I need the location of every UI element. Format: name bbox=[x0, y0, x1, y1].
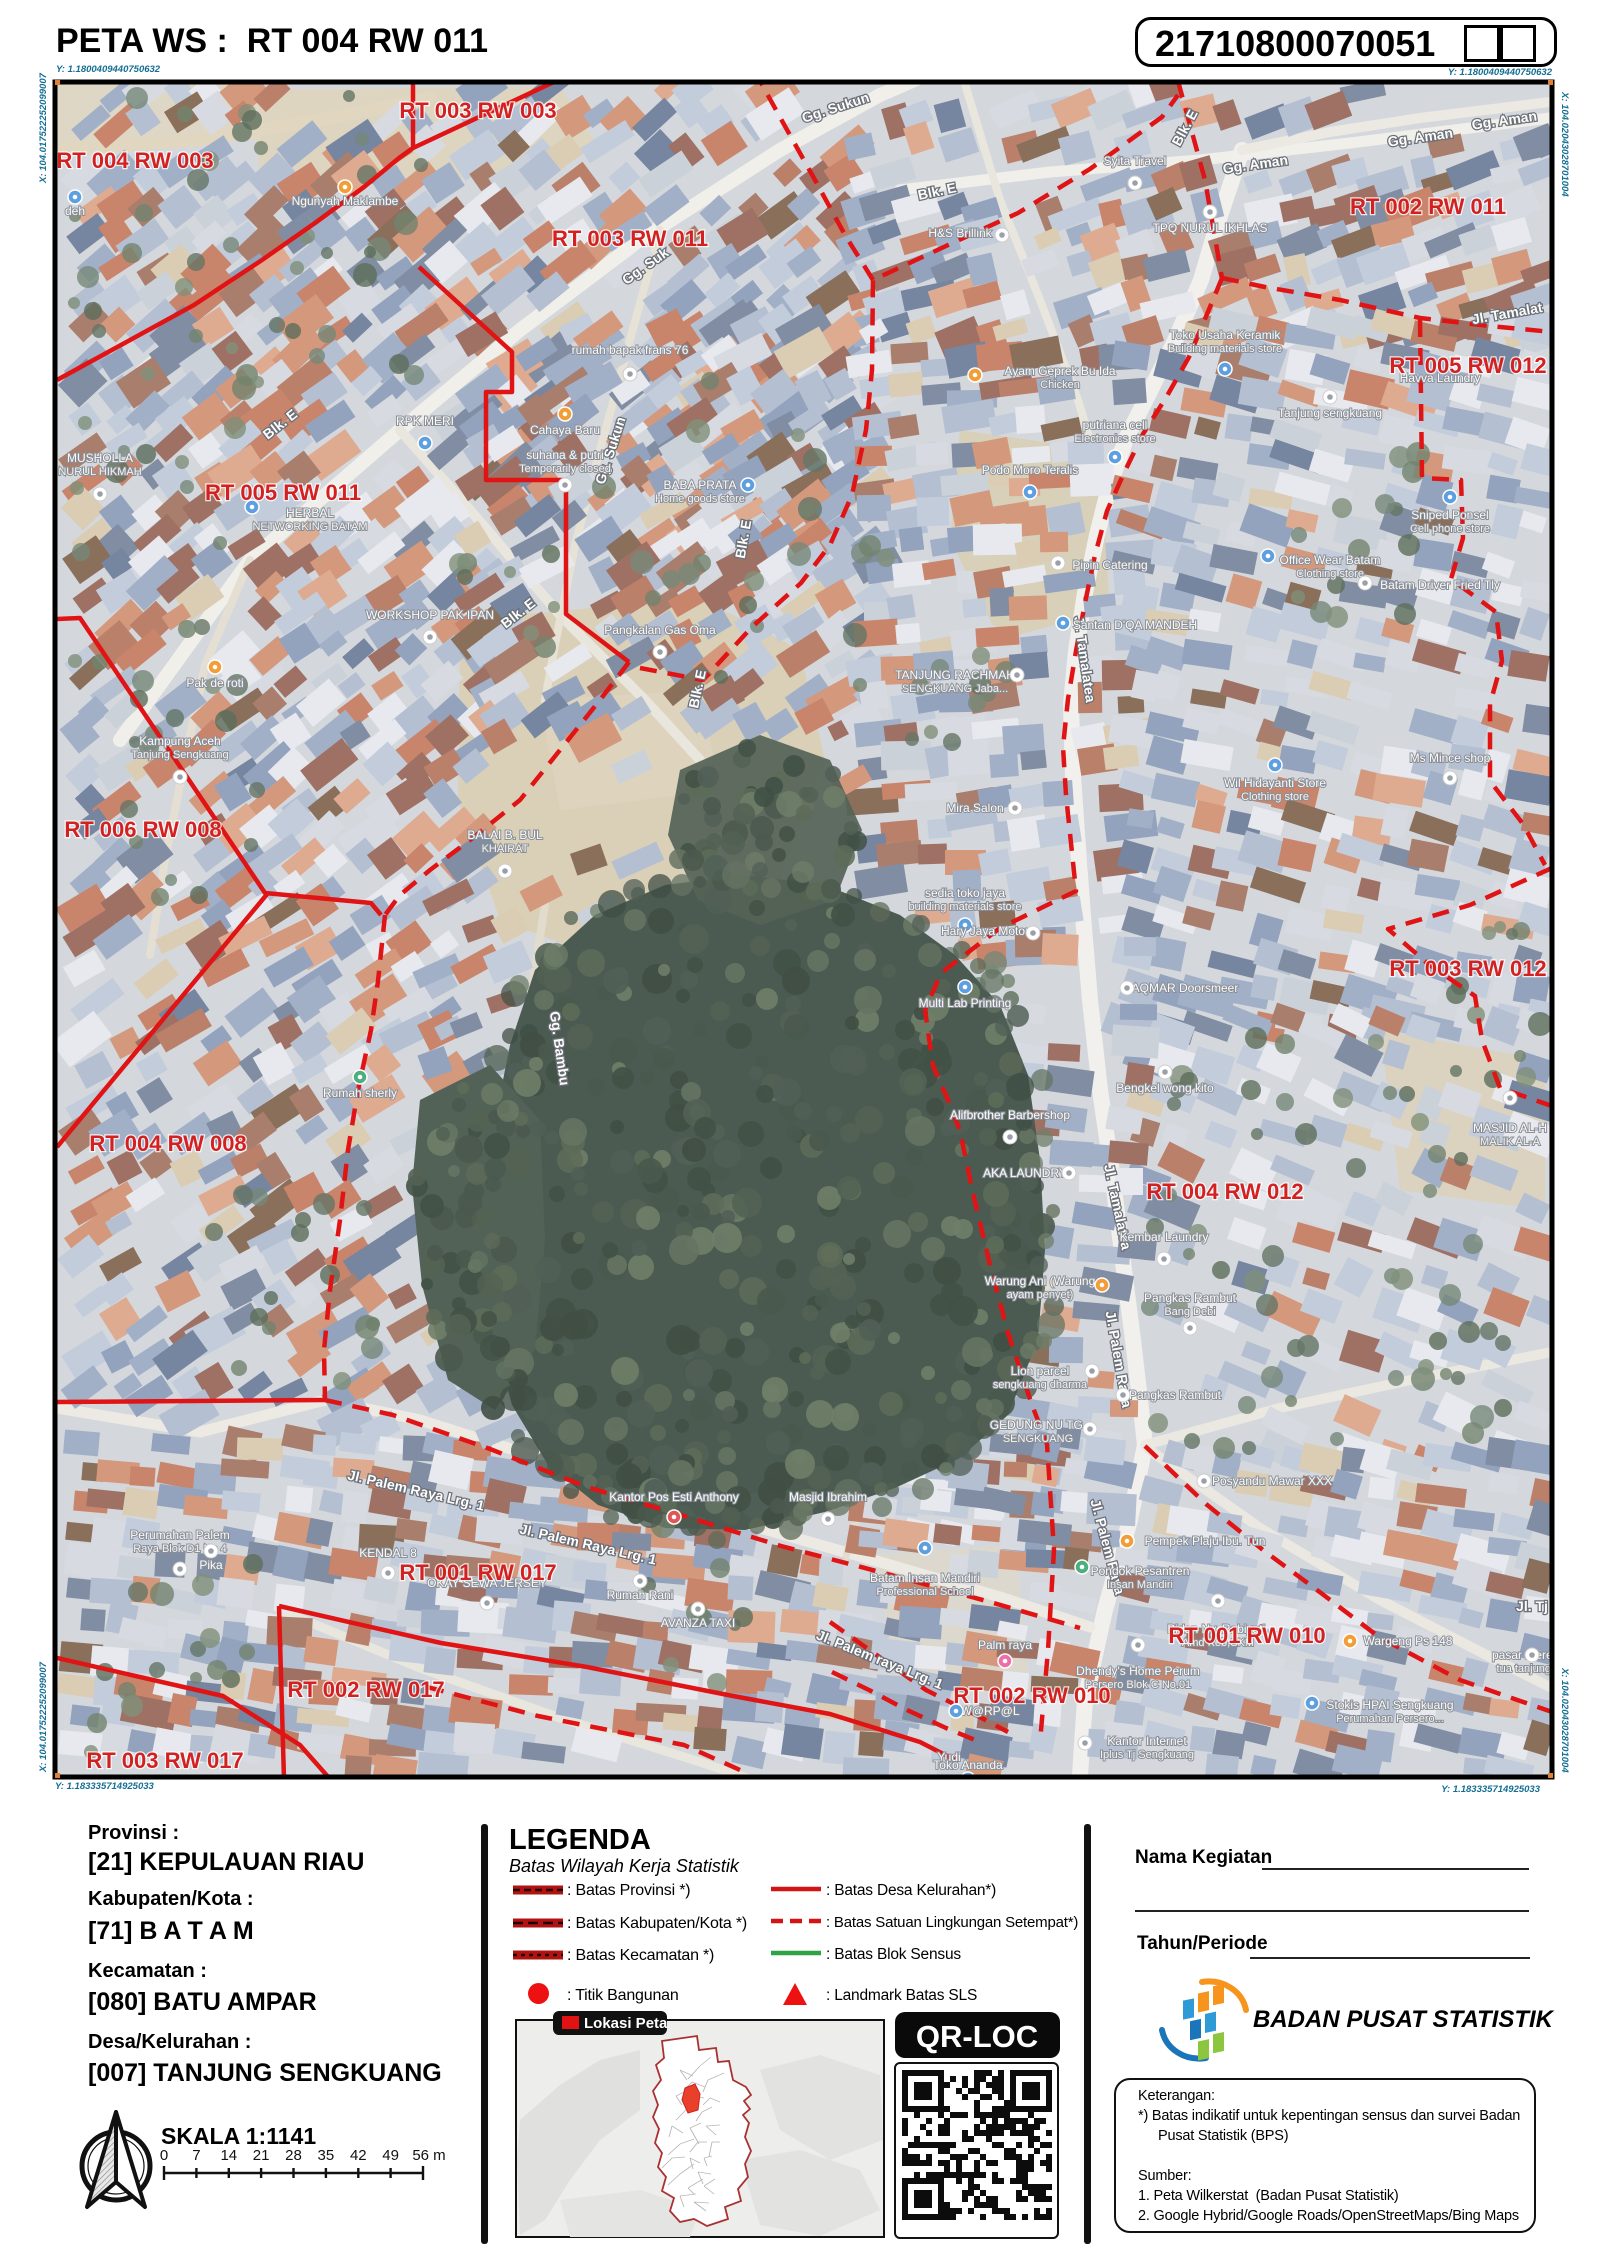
svg-text:AKA LAUNDRY: AKA LAUNDRY bbox=[983, 1166, 1067, 1180]
svg-text:MALIK AL-A: MALIK AL-A bbox=[1480, 1136, 1541, 1148]
svg-text:GEDUNG NU TG.: GEDUNG NU TG. bbox=[990, 1418, 1086, 1432]
svg-text:Multi Lab Printing: Multi Lab Printing bbox=[919, 996, 1012, 1010]
svg-text:Santan D'QA MANDEH: Santan D'QA MANDEH bbox=[1073, 618, 1197, 632]
svg-text:MUSHOLLA: MUSHOLLA bbox=[67, 451, 133, 465]
svg-text:Palm raya: Palm raya bbox=[978, 1638, 1032, 1652]
svg-text:Dhendy's Home Perum: Dhendy's Home Perum bbox=[1076, 1664, 1200, 1678]
svg-text:BALAI B. BUL: BALAI B. BUL bbox=[467, 828, 543, 842]
svg-text:Ms Mince shop: Ms Mince shop bbox=[1410, 751, 1491, 765]
svg-text:Hary Jaya Motor: Hary Jaya Motor bbox=[941, 924, 1029, 938]
svg-text:Pondok Pesantren: Pondok Pesantren bbox=[1091, 1564, 1190, 1578]
svg-text:RT 001 RW 017: RT 001 RW 017 bbox=[399, 1560, 556, 1585]
svg-text:Syita Travel: Syita Travel bbox=[1104, 154, 1167, 168]
svg-text:BABA PRATA: BABA PRATA bbox=[664, 478, 737, 492]
svg-text:Batam Driver Fried Tly: Batam Driver Fried Tly bbox=[1380, 578, 1500, 592]
svg-text:KHAIRAT: KHAIRAT bbox=[482, 843, 529, 855]
svg-text:rumah bapak frans 76: rumah bapak frans 76 bbox=[572, 343, 689, 357]
svg-text:Podo Moro Teralis: Podo Moro Teralis bbox=[982, 463, 1079, 477]
svg-text:RT 004 RW 003: RT 004 RW 003 bbox=[56, 148, 213, 173]
svg-text:Clothing store: Clothing store bbox=[1296, 568, 1364, 580]
svg-text:Kampung Aceh: Kampung Aceh bbox=[139, 734, 220, 748]
svg-text:Professional School: Professional School bbox=[876, 1586, 973, 1598]
svg-text:Batam Insan Mandiri: Batam Insan Mandiri bbox=[870, 1571, 980, 1585]
svg-text:Electronics store: Electronics store bbox=[1074, 433, 1155, 445]
svg-text:suhana & putri: suhana & putri bbox=[526, 448, 603, 462]
svg-text:RT 006 RW 008: RT 006 RW 008 bbox=[64, 817, 221, 842]
svg-text:building materials store: building materials store bbox=[908, 901, 1021, 913]
svg-text:Jl. Tj: Jl. Tj bbox=[1516, 1598, 1548, 1614]
svg-text:Toko Usaha Keramik: Toko Usaha Keramik bbox=[1170, 328, 1282, 342]
svg-text:RT 002 RW 011: RT 002 RW 011 bbox=[1350, 194, 1506, 219]
svg-text:TPQ NURUL IKHLAS: TPQ NURUL IKHLAS bbox=[1153, 221, 1268, 235]
svg-text:Iplus Tj Sengkuang: Iplus Tj Sengkuang bbox=[1100, 1749, 1194, 1761]
svg-text:Pangkas Rambut: Pangkas Rambut bbox=[1144, 1291, 1237, 1305]
svg-text:Building materials store: Building materials store bbox=[1168, 343, 1282, 355]
svg-text:Kembar Laundry: Kembar Laundry bbox=[1120, 1230, 1209, 1244]
svg-text:Posyandu Mawar XXX: Posyandu Mawar XXX bbox=[1212, 1474, 1332, 1488]
svg-text:42: 42 bbox=[350, 2148, 367, 2164]
svg-text:Bengkel wong kito: Bengkel wong kito bbox=[1116, 1081, 1214, 1095]
svg-text:RT 003 RW 012: RT 003 RW 012 bbox=[1389, 956, 1546, 981]
svg-text:Pak de roti: Pak de roti bbox=[186, 676, 243, 690]
svg-text:H&S Brillink: H&S Brillink bbox=[928, 226, 992, 240]
svg-text:Perumahan Palem: Perumahan Palem bbox=[130, 1528, 229, 1542]
svg-text:35: 35 bbox=[318, 2148, 335, 2164]
svg-text:RT 003 RW 017: RT 003 RW 017 bbox=[86, 1748, 243, 1773]
svg-text:Office Wear Batam: Office Wear Batam bbox=[1280, 553, 1381, 567]
svg-text:Ayam Geprek Bu Ida: Ayam Geprek Bu Ida bbox=[1004, 364, 1115, 378]
svg-text:Stokis HPAI Sengkuang: Stokis HPAI Sengkuang bbox=[1326, 1698, 1453, 1712]
svg-text:RT 003 RW 003: RT 003 RW 003 bbox=[399, 98, 556, 123]
svg-text:Rumah Rani: Rumah Rani bbox=[607, 1588, 674, 1602]
svg-text:Kantor Internet: Kantor Internet bbox=[1107, 1734, 1187, 1748]
svg-text:21: 21 bbox=[253, 2148, 270, 2164]
svg-text:TANJUNG RACHMAH: TANJUNG RACHMAH bbox=[895, 668, 1015, 682]
svg-text:RT 001 RW 010: RT 001 RW 010 bbox=[1168, 1623, 1325, 1648]
svg-text:Warung Ani (Warung: Warung Ani (Warung bbox=[985, 1274, 1096, 1288]
svg-text:7: 7 bbox=[192, 2148, 200, 2164]
svg-text:Pangkalan Gas Oma: Pangkalan Gas Oma bbox=[604, 623, 716, 637]
svg-text:RT 005 RW 011: RT 005 RW 011 bbox=[205, 480, 361, 505]
svg-text:Pangkas Rambut: Pangkas Rambut bbox=[1129, 1388, 1222, 1402]
svg-text:Rumah sherly: Rumah sherly bbox=[323, 1086, 397, 1100]
svg-text:SENGKUANG: SENGKUANG bbox=[1003, 1433, 1073, 1445]
svg-text:Clothing store: Clothing store bbox=[1241, 791, 1309, 803]
svg-text:Toko Ananda: Toko Ananda bbox=[933, 1758, 1003, 1772]
svg-text:AVANZA TAXI: AVANZA TAXI bbox=[661, 1616, 735, 1630]
svg-text:putriana cell: putriana cell bbox=[1083, 418, 1148, 432]
svg-text:RT 005 RW 012: RT 005 RW 012 bbox=[1389, 353, 1546, 378]
svg-text:Mira Salon: Mira Salon bbox=[946, 801, 1003, 815]
svg-text:tua tanjung Se: tua tanjung Se bbox=[1497, 1663, 1568, 1675]
svg-text:Pika: Pika bbox=[199, 1558, 223, 1572]
svg-text:Temporarily closed: Temporarily closed bbox=[519, 463, 611, 475]
svg-text:Perumahan Persero...: Perumahan Persero... bbox=[1336, 1713, 1444, 1725]
svg-text:0: 0 bbox=[160, 2148, 168, 2164]
svg-text:Tanjung Sengkuang: Tanjung Sengkuang bbox=[131, 749, 228, 761]
svg-text:Tanjung sengkuang: Tanjung sengkuang bbox=[1278, 406, 1382, 420]
svg-text:Ngunyah Maklambe: Ngunyah Maklambe bbox=[292, 194, 399, 208]
svg-text:RT 003 RW 011: RT 003 RW 011 bbox=[552, 226, 708, 251]
svg-text:RPK MERI: RPK MERI bbox=[396, 414, 454, 428]
svg-text:deh: deh bbox=[65, 204, 85, 218]
svg-text:Pipin Catering: Pipin Catering bbox=[1072, 558, 1147, 572]
svg-text:RT 004 RW 008: RT 004 RW 008 bbox=[89, 1131, 246, 1156]
svg-text:NETWORKING BATAM: NETWORKING BATAM bbox=[252, 521, 367, 533]
svg-text:Insan Mandiri: Insan Mandiri bbox=[1107, 1579, 1173, 1591]
svg-text:RT 002 RW 017: RT 002 RW 017 bbox=[287, 1677, 444, 1702]
svg-text:HERBAL: HERBAL bbox=[286, 506, 334, 520]
svg-text:56 m: 56 m bbox=[412, 2148, 445, 2164]
svg-text:Sniped Ponsel: Sniped Ponsel bbox=[1411, 508, 1488, 522]
svg-text:KENDAL 8: KENDAL 8 bbox=[359, 1546, 417, 1560]
svg-text:49: 49 bbox=[382, 2148, 399, 2164]
svg-text:14: 14 bbox=[220, 2148, 237, 2164]
svg-text:Kantor Pos Esti Anthony: Kantor Pos Esti Anthony bbox=[609, 1490, 738, 1504]
svg-text:Wil Hidayanti Store: Wil Hidayanti Store bbox=[1224, 776, 1326, 790]
svg-text:NURUL HIKMAH: NURUL HIKMAH bbox=[58, 466, 141, 478]
svg-text:Pempek Plaju Ibu. Tun: Pempek Plaju Ibu. Tun bbox=[1145, 1534, 1266, 1548]
svg-text:SENGKUANG Jaba...: SENGKUANG Jaba... bbox=[902, 683, 1008, 695]
svg-text:WORKSHOP PAK IPAN: WORKSHOP PAK IPAN bbox=[366, 608, 494, 622]
svg-text:sedia toko jaya: sedia toko jaya bbox=[925, 886, 1005, 900]
svg-text:Cell phone store: Cell phone store bbox=[1410, 523, 1490, 535]
svg-text:RT 002 RW 010: RT 002 RW 010 bbox=[953, 1683, 1110, 1708]
svg-text:Wargeng Ps 148: Wargeng Ps 148 bbox=[1364, 1634, 1453, 1648]
svg-text:Bang Debi: Bang Debi bbox=[1164, 1306, 1215, 1318]
svg-text:Alifbrother Barbershop: Alifbrother Barbershop bbox=[950, 1108, 1070, 1122]
svg-text:sengkuang dharma: sengkuang dharma bbox=[993, 1379, 1088, 1391]
svg-text:AQMAR Doorsmeer: AQMAR Doorsmeer bbox=[1132, 981, 1239, 995]
svg-text:MASJID AL-H: MASJID AL-H bbox=[1473, 1121, 1547, 1135]
svg-text:Cahaya Baru: Cahaya Baru bbox=[530, 423, 600, 437]
svg-text:Home goods store: Home goods store bbox=[655, 493, 745, 505]
svg-text:ayam penyet): ayam penyet) bbox=[1007, 1289, 1074, 1301]
svg-text:28: 28 bbox=[285, 2148, 302, 2164]
svg-text:Masjid Ibrahim: Masjid Ibrahim bbox=[789, 1490, 867, 1504]
svg-text:Chicken: Chicken bbox=[1040, 379, 1080, 391]
svg-text:Lion parcel: Lion parcel bbox=[1011, 1364, 1070, 1378]
svg-text:RT 004 RW 012: RT 004 RW 012 bbox=[1146, 1179, 1303, 1204]
